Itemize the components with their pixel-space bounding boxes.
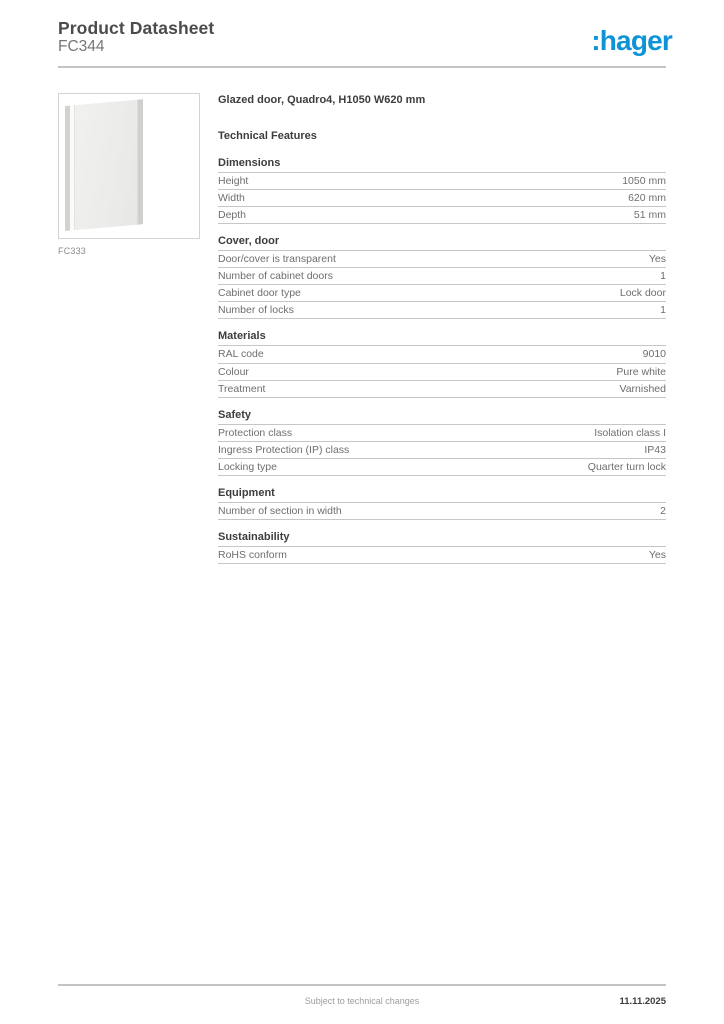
product-image <box>58 93 200 239</box>
spec-label: Number of section in width <box>218 505 342 517</box>
spec-row: Number of section in width 2 <box>218 503 666 520</box>
spec-label: RoHS conform <box>218 549 287 561</box>
spec-section-title: Safety <box>218 409 666 425</box>
specs-column: Glazed door, Quadro4, H1050 W620 mm Tech… <box>218 93 666 564</box>
spec-value: IP43 <box>644 444 666 456</box>
content-area: FC333 Glazed door, Quadro4, H1050 W620 m… <box>58 93 666 564</box>
spec-value: 2 <box>660 505 666 517</box>
product-reference: FC344 <box>58 38 214 57</box>
spec-section: Safety Protection class Isolation class … <box>218 409 666 476</box>
spec-row: Treatment Varnished <box>218 381 666 398</box>
spec-label: Number of locks <box>218 304 294 316</box>
spec-value: Yes <box>649 549 666 561</box>
product-visual-column: FC333 <box>58 93 200 564</box>
spec-section-title: Equipment <box>218 487 666 503</box>
spec-value: 51 mm <box>634 209 666 221</box>
spec-value: 1050 mm <box>622 175 666 187</box>
spec-row: Height 1050 mm <box>218 173 666 190</box>
header-titles: Product Datasheet FC344 <box>58 18 214 57</box>
product-title: Glazed door, Quadro4, H1050 W620 mm <box>218 94 666 106</box>
spec-label: Depth <box>218 209 246 221</box>
spec-label: Width <box>218 192 245 204</box>
spec-row: Number of locks 1 <box>218 302 666 319</box>
footer-note: Subject to technical changes <box>58 996 666 1006</box>
footer-row: Subject to technical changes 11.11.2025 <box>58 996 666 1008</box>
spec-label: Ingress Protection (IP) class <box>218 444 349 456</box>
spec-label: Door/cover is transparent <box>218 253 336 265</box>
spec-section: Sustainability RoHS conform Yes <box>218 531 666 564</box>
spec-row: RoHS conform Yes <box>218 547 666 564</box>
spec-row: Protection class Isolation class I <box>218 425 666 442</box>
door-edge-strip <box>137 99 143 225</box>
datasheet-page: Product Datasheet FC344 :hager FC333 Gla… <box>0 0 724 1024</box>
spec-rows: Number of section in width 2 <box>218 503 666 520</box>
spec-row: Width 620 mm <box>218 190 666 207</box>
spec-row: Number of cabinet doors 1 <box>218 268 666 285</box>
spec-section-title: Materials <box>218 330 666 346</box>
spec-value: 1 <box>660 270 666 282</box>
spec-section: Materials RAL code 9010 Colour Pure whit… <box>218 330 666 397</box>
spec-rows: RAL code 9010 Colour Pure white Treatmen… <box>218 346 666 397</box>
spec-row: Ingress Protection (IP) class IP43 <box>218 442 666 459</box>
page-footer: Subject to technical changes 11.11.2025 <box>58 984 666 1008</box>
spec-label: Locking type <box>218 461 277 473</box>
spec-section-title: Sustainability <box>218 531 666 547</box>
footer-divider <box>58 984 666 986</box>
header-divider <box>58 66 666 68</box>
spec-section-title: Dimensions <box>218 157 666 173</box>
spec-rows: RoHS conform Yes <box>218 547 666 564</box>
spec-label: Protection class <box>218 427 292 439</box>
page-header: Product Datasheet FC344 :hager <box>58 18 672 57</box>
spec-label: Cabinet door type <box>218 287 301 299</box>
spec-value: Yes <box>649 253 666 265</box>
hager-logo: :hager <box>591 27 672 55</box>
spec-row: Door/cover is transparent Yes <box>218 251 666 268</box>
spec-rows: Height 1050 mm Width 620 mm Depth 51 mm <box>218 173 666 224</box>
door-panel <box>74 100 137 231</box>
spec-row: RAL code 9010 <box>218 346 666 363</box>
spec-section: Dimensions Height 1050 mm Width 620 mm D… <box>218 157 666 224</box>
technical-features-heading: Technical Features <box>218 130 666 142</box>
spec-label: Treatment <box>218 383 265 395</box>
spec-row: Depth 51 mm <box>218 207 666 224</box>
spec-value: 9010 <box>643 348 666 360</box>
spec-value: 620 mm <box>628 192 666 204</box>
spec-rows: Protection class Isolation class I Ingre… <box>218 425 666 476</box>
spec-value: Isolation class I <box>594 427 666 439</box>
spec-row: Cabinet door type Lock door <box>218 285 666 302</box>
spec-row: Locking type Quarter turn lock <box>218 459 666 476</box>
page-title: Product Datasheet <box>58 18 214 38</box>
spec-value: Lock door <box>620 287 666 299</box>
spec-value: Pure white <box>616 366 666 378</box>
spec-sections: Dimensions Height 1050 mm Width 620 mm D… <box>218 157 666 564</box>
spec-row: Colour Pure white <box>218 364 666 381</box>
spec-rows: Door/cover is transparent Yes Number of … <box>218 251 666 319</box>
spec-value: Varnished <box>619 383 666 395</box>
image-caption: FC333 <box>58 246 200 256</box>
spec-section: Equipment Number of section in width 2 <box>218 487 666 520</box>
spec-label: Number of cabinet doors <box>218 270 333 282</box>
door-illustration <box>65 99 143 231</box>
spec-label: Height <box>218 175 248 187</box>
spec-value: 1 <box>660 304 666 316</box>
spec-section-title: Cover, door <box>218 235 666 251</box>
spec-label: RAL code <box>218 348 264 360</box>
footer-date: 11.11.2025 <box>620 996 667 1007</box>
spec-value: Quarter turn lock <box>588 461 666 473</box>
spec-section: Cover, door Door/cover is transparent Ye… <box>218 235 666 319</box>
spec-label: Colour <box>218 366 249 378</box>
